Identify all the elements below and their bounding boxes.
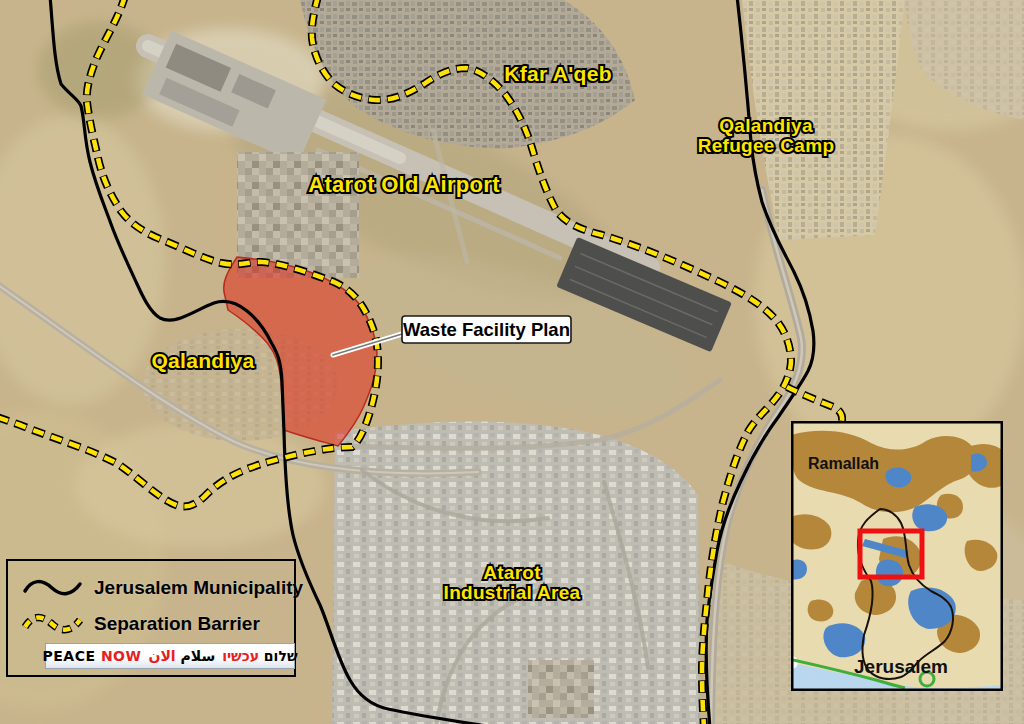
logo-english: PEACE NOW xyxy=(43,648,142,664)
legend: Jerusalem Municipality Separation Barrie… xyxy=(6,559,296,677)
legend-item-barrier: Separation Barrier xyxy=(22,611,260,637)
label-kfar-aqeb: Kfar A'qeb xyxy=(504,62,612,85)
separation-barrier-icon xyxy=(22,611,84,637)
legend-municipality-label: Jerusalem Municipality xyxy=(94,577,303,599)
logo-arabic: سلام الان xyxy=(148,648,215,664)
map-canvas: Waste Facility Plan Kfar A'qeb Qalandiya… xyxy=(0,0,1024,724)
municipality-line-icon xyxy=(22,575,84,601)
peace-now-logo: PEACE NOW سلام الان שלום עכשיו xyxy=(45,643,295,669)
inset-label-ramallah: Ramallah xyxy=(808,455,879,472)
logo-hebrew: שלום עכשיו xyxy=(222,648,297,664)
legend-item-municipality: Jerusalem Municipality xyxy=(22,575,303,601)
waste-facility-label: Waste Facility Plan xyxy=(403,319,570,340)
inset-label-jerusalem: Jerusalem xyxy=(854,656,948,677)
label-industrial-line1: Atarot xyxy=(483,562,541,583)
label-refugee-camp-line1: Qalandiya xyxy=(719,115,813,136)
label-refugee-camp-line2: Refugee Camp xyxy=(698,135,835,156)
inset-locator-map: Ramallah Jerusalem xyxy=(791,421,1003,691)
label-qalandiya: Qalandiya xyxy=(151,349,254,372)
legend-barrier-label: Separation Barrier xyxy=(94,613,260,635)
label-industrial-line2: Industrial Area xyxy=(444,582,581,603)
label-atarot-airport: Atarot Old Airport xyxy=(308,172,500,197)
